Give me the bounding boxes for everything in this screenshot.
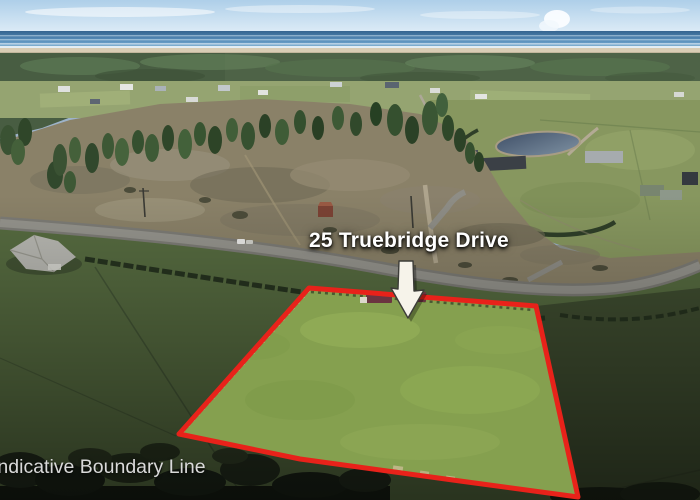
sky (0, 0, 700, 34)
shed (682, 172, 698, 185)
shed (585, 151, 623, 163)
aerial-property-photo: 25 Truebridge Drive Indicative Boundary … (0, 0, 700, 500)
ocean (0, 31, 700, 50)
boundary-disclaimer-label: Indicative Boundary Line (0, 456, 206, 479)
property-address-label: 25 Truebridge Drive (309, 229, 509, 253)
